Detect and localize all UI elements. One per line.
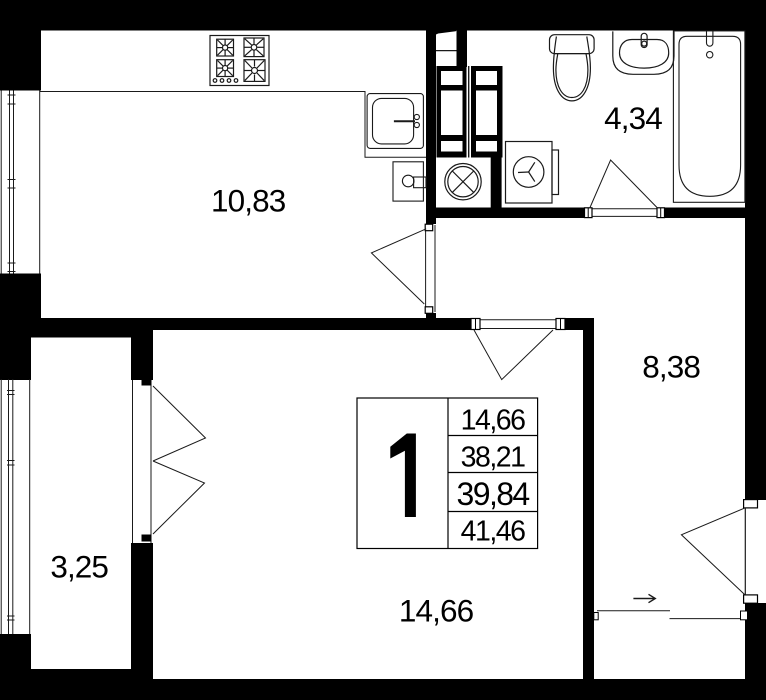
svg-text:41,46: 41,46 [461,516,525,548]
svg-text:14,66: 14,66 [461,405,525,437]
svg-text:8,38: 8,38 [642,349,700,385]
svg-text:3,25: 3,25 [50,549,108,585]
svg-text:38,21: 38,21 [461,441,525,473]
svg-text:14,66: 14,66 [399,593,474,629]
svg-text:39,84: 39,84 [457,476,530,512]
svg-text:4,34: 4,34 [604,100,662,136]
svg-text:10,83: 10,83 [211,183,286,219]
